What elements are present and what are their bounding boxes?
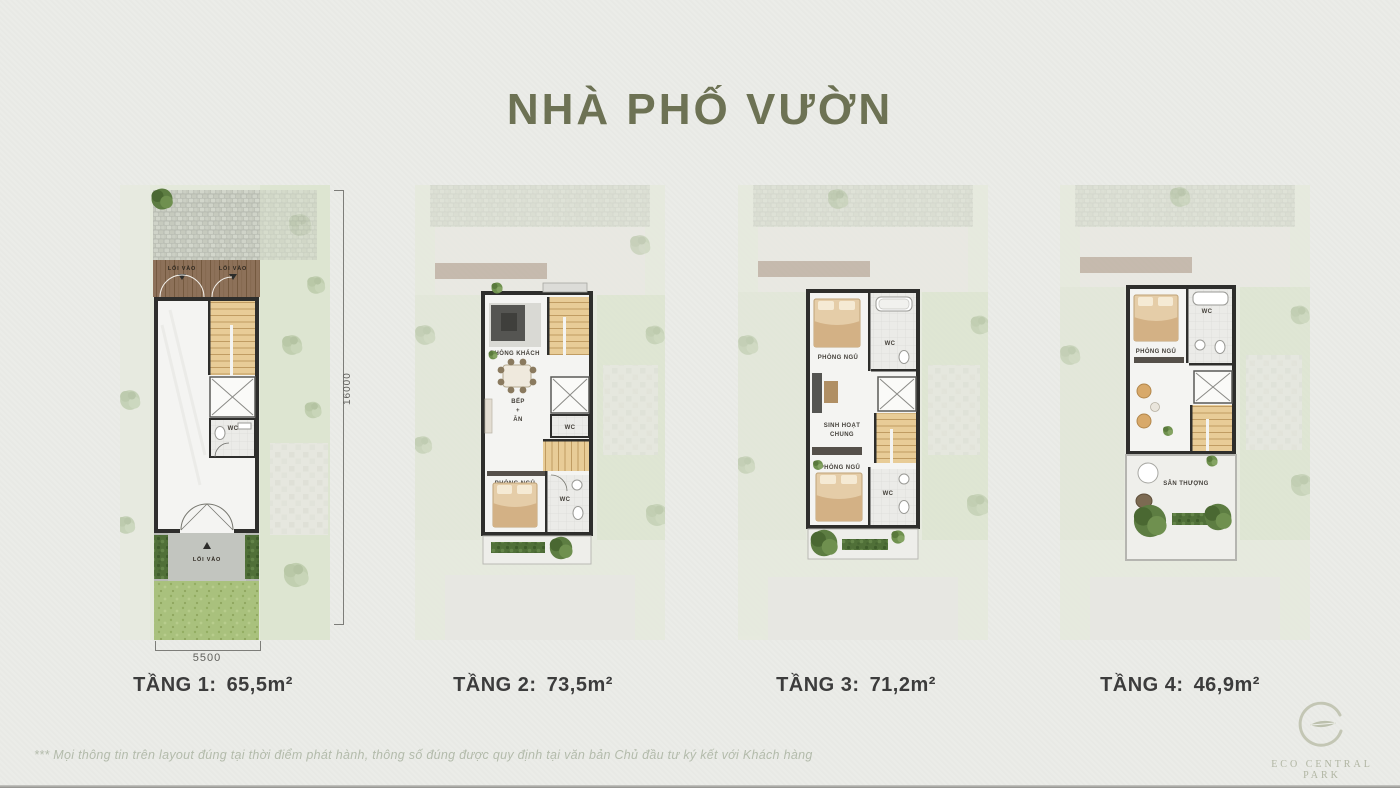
entry-label: LỐI VÀO — [219, 265, 247, 272]
wc-room: WC — [551, 415, 589, 437]
floor2-name: TẦNG 2: — [453, 674, 537, 696]
staircase — [547, 297, 589, 355]
floor3-building: PHÒNG NGỦ WC SINH HOẠT CHUNG — [806, 289, 920, 529]
kitchen-label: BẾP — [511, 398, 525, 405]
lot-width-dimension: 5500 — [193, 652, 221, 664]
brand-name: ECO CENTRAL PARK — [1252, 759, 1392, 781]
floor1-area: 65,5m² — [227, 674, 293, 696]
floor3-plan: PHÒNG NGỦ WC SINH HOẠT CHUNG — [738, 185, 988, 640]
entry-label: LỐI VÀO — [193, 556, 221, 563]
floor1-caption: TẦNG 1:65,5m² — [133, 674, 293, 697]
disclaimer-note: *** Mọi thông tin trên layout đúng tại t… — [34, 748, 813, 762]
floor1-building: WC — [154, 297, 259, 533]
floor2-building: PHÒNG KHÁCH BẾP + ĂN WC — [481, 283, 593, 537]
bedroom-label: PHÒNG NGỦ — [818, 353, 859, 361]
floor4-caption: TẦNG 4:46,9m² — [1100, 674, 1260, 697]
floor1-deck: LỐI VÀO LỐI VÀO — [153, 260, 260, 297]
page: { "title": "NHÀ PHỐ VƯỜN", "floors": [ {… — [0, 0, 1400, 788]
wc-label: WC — [565, 425, 576, 431]
staircase — [208, 301, 255, 375]
floor2-balcony — [483, 536, 591, 564]
elevator — [878, 377, 916, 411]
floor4-building: PHÒNG NGỦ WC — [1126, 285, 1236, 455]
elevator — [210, 377, 255, 417]
bedroom-label: PHÒNG NGỦ — [1136, 347, 1177, 355]
lot-depth-dimension-line — [334, 190, 344, 625]
floor3-name: TẦNG 3: — [776, 674, 860, 696]
page-title: NHÀ PHỐ VƯỜN — [0, 85, 1400, 135]
floor3-balcony — [808, 529, 918, 559]
staircase — [543, 439, 589, 471]
bedroom-label: PHÒNG NGỦ — [820, 463, 861, 471]
floor4-name: TẦNG 4: — [1100, 674, 1184, 696]
elevator — [551, 377, 589, 413]
wc-label: WC — [560, 497, 571, 503]
wc-room: WC — [548, 475, 589, 532]
eco-leaf-icon — [1296, 698, 1348, 750]
staircase — [874, 413, 916, 463]
living-label: PHÒNG KHÁCH — [490, 349, 540, 357]
elevator — [1194, 371, 1232, 403]
wc-label: WC — [228, 426, 239, 432]
floor3-area: 71,2m² — [870, 674, 936, 696]
brand-logo: ECO CENTRAL PARK — [1252, 698, 1392, 781]
floor3-caption: TẦNG 3:71,2m² — [776, 674, 936, 697]
wc-room: WC — [210, 419, 255, 457]
wc-label: WC — [1202, 309, 1213, 315]
lawn — [154, 581, 259, 640]
common-label: CHUNG — [830, 432, 854, 438]
floor1-driveway — [152, 189, 318, 261]
lot-width-dimension-line — [155, 641, 261, 651]
wc-label: WC — [885, 341, 896, 347]
planter-icon — [492, 283, 503, 294]
floor4-area: 46,9m² — [1194, 674, 1260, 696]
kitchen-label: + — [516, 408, 520, 414]
floor1-name: TẦNG 1: — [133, 674, 217, 696]
roof-terrace: SÂN THƯỢNG — [1126, 455, 1236, 560]
floor2-area: 73,5m² — [547, 674, 613, 696]
entry-label: LỐI VÀO — [168, 265, 196, 272]
terrace-label: SÂN THƯỢNG — [1163, 480, 1208, 487]
lot-depth-dimension: 16000 — [342, 372, 353, 405]
staircase — [1190, 405, 1232, 451]
floor2-caption: TẦNG 2:73,5m² — [453, 674, 613, 697]
floor2-plan: PHÒNG KHÁCH BẾP + ĂN WC — [415, 185, 665, 640]
floor1-entry-yard: LỐI VÀO — [154, 533, 259, 640]
wc-label: WC — [883, 491, 894, 497]
wc-room: WC — [1189, 289, 1232, 366]
common-label: SINH HOẠT — [824, 423, 861, 429]
terrace-table — [1138, 463, 1158, 483]
wc-room: WC — [871, 293, 916, 372]
floor4-plan: PHÒNG NGỦ WC — [1060, 185, 1310, 640]
wc-room: WC — [871, 469, 916, 525]
floor1-plan: LỐI VÀO LỐI VÀO WC — [120, 185, 330, 640]
kitchen-label: ĂN — [513, 416, 522, 423]
